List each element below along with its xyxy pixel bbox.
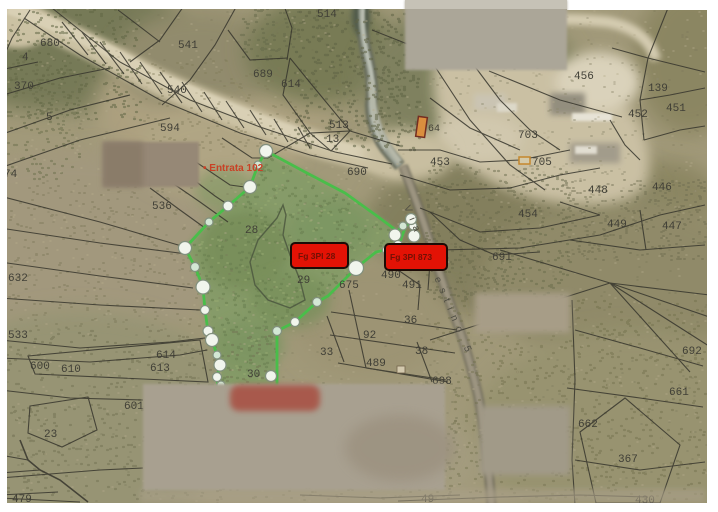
svg-text:Fg 3Pl 873: Fg 3Pl 873	[390, 252, 432, 262]
svg-text:Fg 3Pl 28: Fg 3Pl 28	[298, 251, 336, 261]
